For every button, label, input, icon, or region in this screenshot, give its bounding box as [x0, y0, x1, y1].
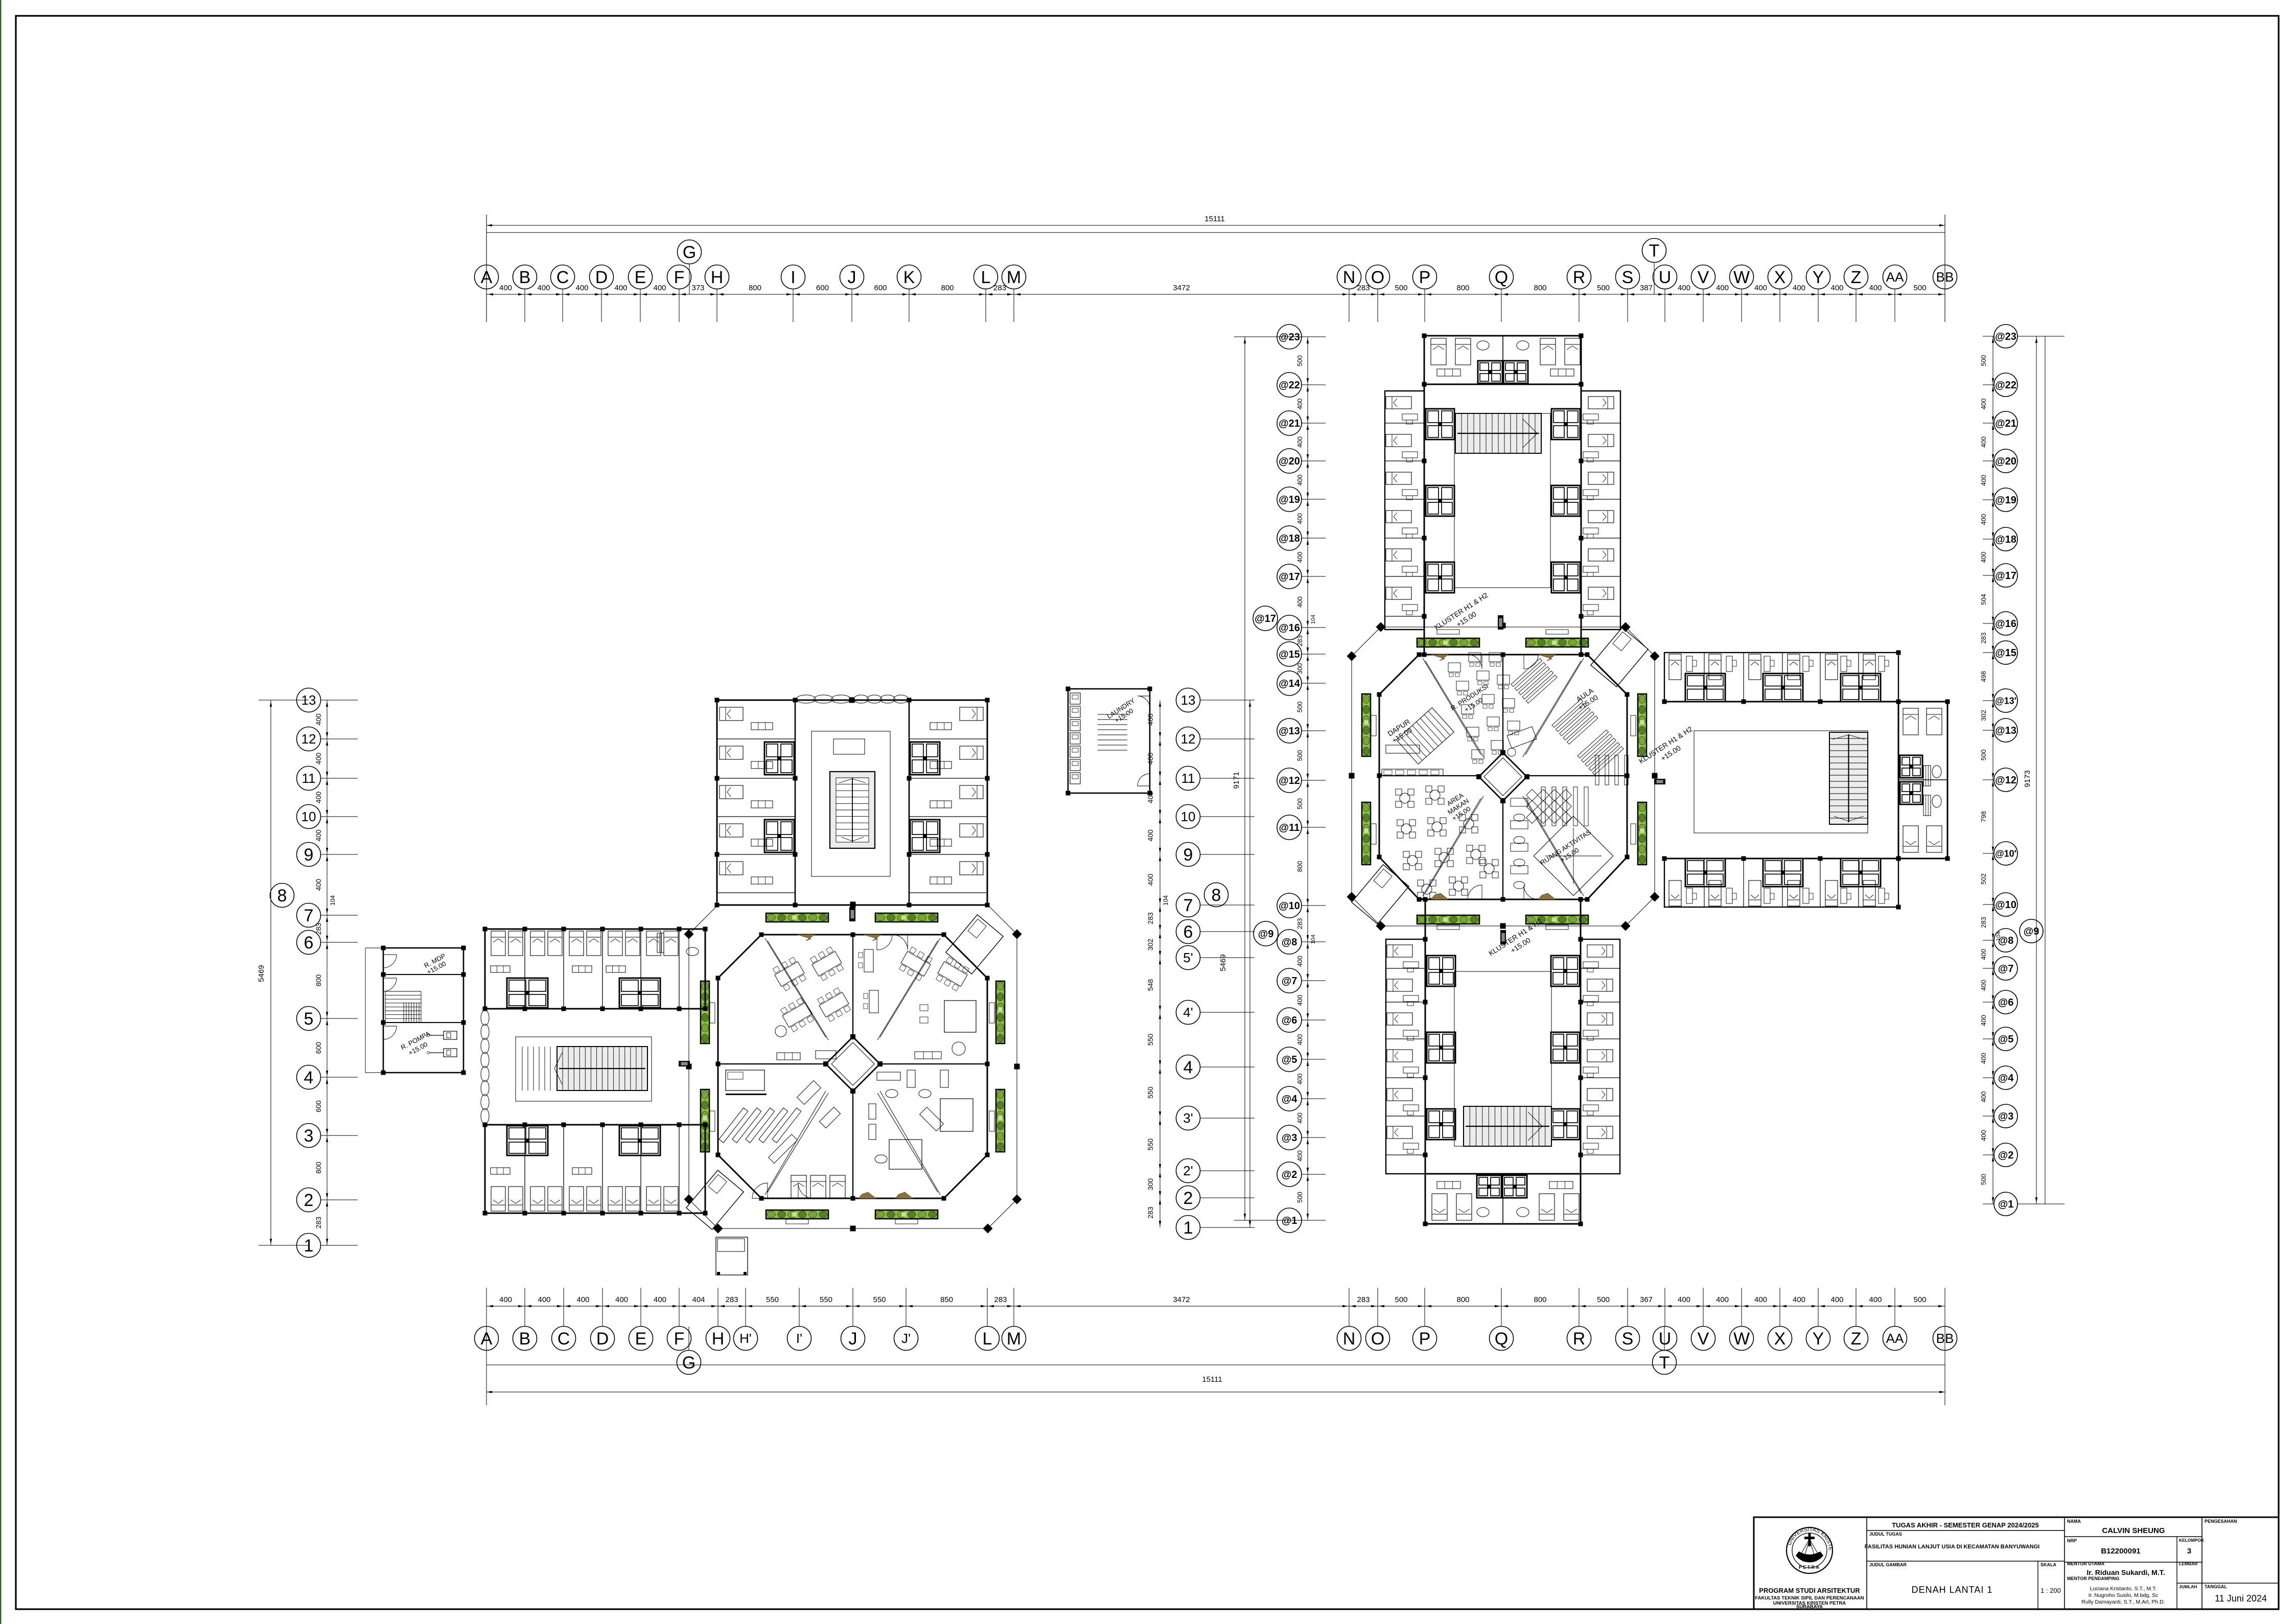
svg-text:@9: @9: [1258, 929, 1274, 940]
svg-text:NAMA: NAMA: [2067, 1519, 2081, 1524]
svg-text:500: 500: [1296, 702, 1304, 713]
svg-text:9173: 9173: [2023, 770, 2032, 787]
svg-text:400: 400: [1296, 596, 1304, 608]
svg-text:N: N: [1343, 1329, 1356, 1349]
svg-text:W: W: [1733, 1329, 1750, 1349]
svg-text:800: 800: [314, 1162, 322, 1174]
svg-text:@15: @15: [1279, 649, 1300, 660]
svg-text:400: 400: [1830, 1295, 1843, 1304]
svg-text:@20: @20: [1279, 456, 1300, 467]
svg-text:AA: AA: [1886, 1331, 1904, 1346]
svg-text:@16: @16: [1995, 618, 2016, 630]
svg-text:1 : 200: 1 : 200: [2040, 1587, 2061, 1594]
svg-text:@13': @13': [1995, 695, 2016, 706]
svg-text:400: 400: [314, 829, 322, 842]
svg-text:Q: Q: [1495, 1329, 1508, 1349]
svg-text:800: 800: [1456, 284, 1469, 292]
svg-text:500: 500: [1296, 1192, 1304, 1203]
svg-text:400: 400: [1296, 1112, 1304, 1124]
svg-text:504: 504: [1980, 594, 1987, 605]
svg-text:Rully Damayanti, S.T., M.Art,: Rully Damayanti, S.T., M.Art, Ph.D.: [2081, 1599, 2165, 1605]
svg-text:5': 5': [1183, 950, 1193, 965]
svg-text:@13: @13: [1279, 726, 1300, 737]
svg-text:12: 12: [1181, 731, 1196, 747]
svg-text:283: 283: [1296, 918, 1304, 930]
svg-text:500: 500: [1395, 284, 1407, 292]
svg-text:400: 400: [615, 1295, 628, 1304]
svg-text:M: M: [1007, 1329, 1021, 1349]
svg-text:B: B: [519, 1329, 531, 1349]
svg-text:F: F: [674, 268, 685, 287]
svg-text:PETRA: PETRA: [1799, 1565, 1820, 1570]
svg-text:Z: Z: [1851, 1329, 1862, 1349]
svg-text:400: 400: [499, 1295, 512, 1304]
svg-text:283: 283: [1357, 1295, 1370, 1304]
svg-text:5469: 5469: [1219, 954, 1227, 971]
svg-text:@19: @19: [1279, 494, 1300, 505]
svg-text:2: 2: [1184, 1189, 1193, 1208]
svg-text:400: 400: [1296, 995, 1304, 1006]
svg-text:9171: 9171: [1232, 772, 1241, 788]
svg-text:11: 11: [302, 771, 316, 786]
svg-text:MENTOR PENDAMPING: MENTOR PENDAMPING: [2067, 1576, 2119, 1581]
svg-text:@21: @21: [1279, 418, 1300, 429]
svg-text:400: 400: [1296, 436, 1304, 448]
svg-text:PENGESAHAN: PENGESAHAN: [2205, 1519, 2237, 1524]
svg-text:@3: @3: [1282, 1132, 1297, 1144]
svg-text:P: P: [1419, 268, 1431, 287]
svg-text:400: 400: [314, 879, 322, 891]
svg-text:387: 387: [1640, 284, 1653, 292]
svg-text:3: 3: [2187, 1547, 2191, 1556]
svg-text:11 Juni 2024: 11 Juni 2024: [2215, 1593, 2267, 1604]
svg-text:FASILITAS HUNIAN LANJUT USIA D: FASILITAS HUNIAN LANJUT USIA DI KECAMATA…: [1865, 1544, 2039, 1550]
svg-text:498: 498: [1980, 671, 1987, 682]
svg-text:D: D: [596, 1329, 609, 1349]
svg-text:283: 283: [725, 1295, 738, 1304]
svg-text:Q: Q: [1495, 268, 1508, 287]
svg-text:400: 400: [314, 713, 322, 726]
svg-text:283: 283: [1146, 912, 1154, 924]
svg-text:400: 400: [614, 284, 627, 292]
svg-text:@4: @4: [1998, 1073, 2014, 1084]
svg-text:104: 104: [1310, 615, 1316, 624]
svg-text:MENTOR UTAMA: MENTOR UTAMA: [2067, 1561, 2105, 1566]
svg-text:@13: @13: [1995, 725, 2016, 736]
svg-text:I: I: [791, 268, 795, 287]
svg-text:850: 850: [940, 1295, 953, 1304]
svg-text:Y: Y: [1813, 268, 1824, 287]
svg-text:@10': @10': [1995, 848, 2016, 859]
svg-text:373: 373: [691, 284, 704, 292]
svg-text:500: 500: [1597, 284, 1610, 292]
svg-text:400: 400: [1296, 956, 1304, 967]
svg-text:404: 404: [692, 1295, 705, 1304]
svg-text:JUDUL TUGAS: JUDUL TUGAS: [1869, 1532, 1902, 1537]
svg-text:800: 800: [1534, 284, 1546, 292]
svg-text:DENAH LANTAI 1: DENAH LANTAI 1: [1912, 1585, 1993, 1595]
svg-text:S: S: [1622, 1329, 1634, 1349]
svg-text:4: 4: [1184, 1058, 1193, 1077]
svg-text:500: 500: [1980, 750, 1987, 761]
svg-text:800: 800: [749, 284, 761, 292]
svg-text:LEMBAR: LEMBAR: [2179, 1561, 2197, 1566]
svg-text:1: 1: [304, 1236, 314, 1256]
svg-text:@12: @12: [1279, 775, 1300, 786]
svg-text:@22: @22: [1995, 380, 2016, 391]
svg-text:400: 400: [1146, 874, 1154, 886]
svg-text:4': 4': [1183, 1005, 1193, 1020]
svg-text:400: 400: [1980, 980, 1987, 991]
svg-text:600: 600: [816, 284, 829, 292]
svg-text:400: 400: [1980, 949, 1987, 960]
svg-text:C: C: [556, 268, 569, 287]
svg-text:283: 283: [993, 284, 1006, 292]
svg-text:@19: @19: [1995, 495, 2016, 506]
svg-text:7: 7: [304, 906, 314, 925]
svg-text:283: 283: [314, 1217, 322, 1229]
svg-text:550: 550: [766, 1295, 779, 1304]
svg-text:400: 400: [1146, 829, 1154, 842]
svg-text:800: 800: [941, 284, 954, 292]
svg-text:500: 500: [1913, 284, 1926, 292]
svg-text:400: 400: [1678, 284, 1690, 292]
svg-text:D: D: [595, 268, 608, 287]
svg-text:550: 550: [820, 1295, 832, 1304]
svg-text:10: 10: [302, 809, 316, 824]
svg-text:600: 600: [874, 284, 887, 292]
svg-text:3472: 3472: [1173, 284, 1190, 292]
svg-text:300: 300: [1146, 1178, 1154, 1191]
svg-text:@17: @17: [1255, 613, 1276, 624]
svg-text:B: B: [519, 268, 531, 287]
svg-text:G: G: [683, 243, 696, 262]
svg-text:@15: @15: [1995, 647, 2016, 659]
svg-text:400: 400: [1980, 1130, 1987, 1141]
svg-text:L: L: [983, 1329, 992, 1349]
svg-text:500: 500: [1980, 355, 1987, 366]
svg-text:@14: @14: [1279, 678, 1301, 689]
svg-text:R: R: [1573, 268, 1586, 287]
svg-text:X: X: [1774, 1329, 1786, 1349]
svg-text:11: 11: [1181, 771, 1195, 786]
svg-text:550: 550: [873, 1295, 886, 1304]
svg-text:H: H: [711, 268, 724, 287]
svg-text:KELOMPOK: KELOMPOK: [2179, 1538, 2205, 1543]
svg-text:400: 400: [1980, 1053, 1987, 1064]
svg-text:@11: @11: [1279, 822, 1300, 833]
svg-text:B12200091: B12200091: [2101, 1547, 2141, 1556]
svg-text:W: W: [1733, 268, 1750, 287]
svg-text:K: K: [903, 268, 915, 287]
svg-text:9: 9: [304, 845, 314, 865]
svg-text:I': I': [796, 1331, 802, 1346]
svg-text:500: 500: [1597, 1295, 1610, 1304]
svg-text:800: 800: [1456, 1295, 1469, 1304]
svg-text:@18: @18: [1995, 534, 2016, 545]
svg-text:400: 400: [1296, 1034, 1304, 1046]
svg-text:@6: @6: [1998, 997, 2014, 1008]
svg-text:400: 400: [654, 1295, 666, 1304]
svg-text:9: 9: [1184, 845, 1193, 865]
svg-text:400: 400: [1980, 436, 1987, 448]
svg-text:400: 400: [1296, 475, 1304, 486]
svg-text:O: O: [1371, 1329, 1384, 1349]
svg-text:400: 400: [576, 1295, 589, 1304]
svg-text:400: 400: [575, 284, 588, 292]
svg-text:15111: 15111: [1204, 215, 1225, 223]
svg-text:R: R: [1573, 1329, 1586, 1349]
svg-text:E: E: [635, 268, 646, 287]
svg-text:104: 104: [1996, 932, 2002, 941]
svg-text:@22: @22: [1279, 380, 1300, 391]
svg-text:400: 400: [499, 284, 512, 292]
svg-text:302: 302: [1980, 710, 1987, 721]
svg-text:CALVIN SHEUNG: CALVIN SHEUNG: [2102, 1526, 2165, 1535]
svg-text:400: 400: [1296, 1074, 1304, 1085]
svg-text:800: 800: [1534, 1295, 1546, 1304]
svg-text:@8: @8: [1282, 937, 1297, 948]
svg-text:H: H: [712, 1329, 725, 1349]
svg-text:283: 283: [314, 923, 322, 935]
svg-text:@12: @12: [1995, 775, 2016, 786]
svg-text:N: N: [1343, 268, 1356, 287]
svg-text:3: 3: [304, 1126, 314, 1146]
svg-text:13: 13: [1181, 692, 1196, 708]
svg-text:@20: @20: [1995, 456, 2016, 467]
svg-text:7: 7: [1184, 896, 1193, 915]
svg-text:2': 2': [1183, 1163, 1193, 1178]
svg-text:400: 400: [1716, 1295, 1729, 1304]
svg-text:400: 400: [1793, 1295, 1805, 1304]
svg-text:400: 400: [314, 792, 322, 804]
svg-text:400: 400: [1716, 284, 1729, 292]
svg-text:400: 400: [1869, 284, 1882, 292]
svg-text:5: 5: [304, 1009, 314, 1029]
svg-text:400: 400: [1296, 513, 1304, 524]
svg-text:400: 400: [1980, 399, 1987, 410]
svg-text:C: C: [558, 1329, 570, 1349]
svg-text:JUDUL GAMBAR: JUDUL GAMBAR: [1869, 1562, 1907, 1567]
svg-text:2: 2: [304, 1191, 314, 1210]
svg-text:400: 400: [1869, 1295, 1882, 1304]
svg-text:@18: @18: [1279, 533, 1300, 544]
svg-text:H': H': [739, 1331, 752, 1346]
svg-text:PROGRAM STUDI ARSITEKTUR: PROGRAM STUDI ARSITEKTUR: [1759, 1587, 1860, 1594]
svg-text:283: 283: [994, 1295, 1007, 1304]
svg-text:500: 500: [1913, 1295, 1926, 1304]
svg-text:502: 502: [1980, 873, 1987, 885]
svg-text:104: 104: [329, 895, 336, 906]
svg-text:800: 800: [1296, 861, 1304, 872]
svg-text:M: M: [1007, 268, 1021, 287]
svg-text:@6: @6: [1282, 1015, 1297, 1026]
svg-text:JUMLAH: JUMLAH: [2179, 1584, 2197, 1589]
svg-text:Z: Z: [1851, 268, 1862, 287]
svg-text:10: 10: [1181, 809, 1196, 824]
svg-text:A: A: [481, 268, 493, 287]
svg-text:548: 548: [1146, 979, 1154, 991]
svg-text:550: 550: [1146, 1086, 1154, 1099]
svg-text:1: 1: [1184, 1218, 1193, 1238]
svg-text:6: 6: [304, 933, 314, 953]
svg-text:BB: BB: [1936, 269, 1954, 285]
svg-text:@10: @10: [1279, 900, 1300, 912]
svg-text:NRP: NRP: [2067, 1538, 2077, 1543]
svg-text:400: 400: [314, 753, 322, 765]
svg-text:400: 400: [653, 284, 666, 292]
svg-text:U: U: [1659, 268, 1672, 287]
svg-text:300: 300: [1296, 663, 1304, 675]
svg-text:@7: @7: [1282, 976, 1297, 987]
svg-text:@10: @10: [1995, 899, 2016, 911]
svg-text:400: 400: [1296, 552, 1304, 563]
svg-text:@7: @7: [1998, 963, 2014, 975]
svg-text:TUGAS AKHIR - SEMESTER GENAP 2: TUGAS AKHIR - SEMESTER GENAP 2024/2025: [1892, 1521, 2039, 1529]
svg-text:E: E: [635, 1329, 647, 1349]
svg-text:@4: @4: [1282, 1094, 1298, 1105]
svg-text:P: P: [1419, 1329, 1431, 1349]
svg-text:283: 283: [1980, 633, 1987, 644]
svg-text:400: 400: [538, 1295, 550, 1304]
svg-text:S: S: [1622, 268, 1634, 287]
svg-text:@9: @9: [2024, 926, 2039, 937]
svg-text:@1: @1: [1282, 1215, 1297, 1226]
svg-text:SURABAYA: SURABAYA: [1796, 1604, 1823, 1610]
svg-text:400: 400: [1980, 514, 1987, 525]
svg-text:AA: AA: [1886, 269, 1904, 285]
svg-text:400: 400: [1980, 1015, 1987, 1026]
svg-text:@2: @2: [1282, 1169, 1297, 1180]
svg-text:@17: @17: [1995, 570, 2016, 582]
svg-text:V: V: [1698, 1329, 1709, 1349]
svg-text:T: T: [1649, 241, 1660, 261]
svg-text:400: 400: [1678, 1295, 1690, 1304]
svg-text:L: L: [981, 268, 991, 287]
svg-text:800: 800: [314, 975, 322, 987]
svg-text:@5: @5: [1282, 1054, 1297, 1065]
svg-text:400: 400: [1793, 284, 1805, 292]
svg-text:400: 400: [1754, 1295, 1767, 1304]
svg-text:@21: @21: [1995, 418, 2016, 429]
svg-text:283: 283: [1980, 917, 1987, 928]
svg-text:@2: @2: [1998, 1150, 2014, 1161]
svg-text:104: 104: [1310, 935, 1316, 944]
svg-text:500: 500: [1296, 750, 1304, 761]
svg-text:8: 8: [277, 886, 287, 906]
svg-text:500: 500: [1980, 1174, 1987, 1185]
svg-text:500: 500: [1395, 1295, 1407, 1304]
svg-text:U: U: [1659, 1329, 1672, 1349]
svg-text:Y: Y: [1813, 1329, 1824, 1349]
svg-text:@17: @17: [1279, 571, 1300, 583]
svg-text:798: 798: [1980, 811, 1987, 822]
svg-text:SKALA: SKALA: [2040, 1562, 2056, 1567]
svg-text:@5: @5: [1998, 1034, 2014, 1045]
svg-text:400: 400: [1296, 399, 1304, 410]
svg-text:283: 283: [1357, 284, 1370, 292]
svg-text:5469: 5469: [257, 965, 266, 982]
svg-text:400: 400: [537, 284, 550, 292]
svg-text:O: O: [1371, 268, 1384, 287]
svg-text:12: 12: [302, 731, 316, 747]
svg-text:J: J: [848, 268, 856, 287]
svg-text:367: 367: [1640, 1295, 1653, 1304]
svg-text:104: 104: [1162, 895, 1169, 906]
svg-text:J': J': [901, 1331, 911, 1346]
svg-text:TANGGAL: TANGGAL: [2205, 1584, 2227, 1589]
svg-text:@23: @23: [1279, 332, 1300, 343]
svg-text:T: T: [1659, 1353, 1670, 1373]
svg-text:8: 8: [1212, 886, 1221, 905]
svg-text:@1: @1: [1998, 1199, 2014, 1210]
svg-text:3472: 3472: [1173, 1295, 1190, 1304]
svg-text:4: 4: [304, 1068, 314, 1087]
svg-text:550: 550: [1146, 1034, 1154, 1046]
svg-text:3': 3': [1183, 1110, 1193, 1126]
svg-text:400: 400: [1754, 284, 1767, 292]
svg-text:@16: @16: [1279, 622, 1300, 634]
svg-text:@23: @23: [1995, 331, 2016, 342]
svg-text:600: 600: [314, 1042, 322, 1054]
svg-text:Luciana Kristanto, S.T., M.T.: Luciana Kristanto, S.T., M.T.: [2090, 1586, 2157, 1592]
svg-text:400: 400: [1980, 475, 1987, 486]
svg-text:600: 600: [314, 1100, 322, 1112]
svg-text:500: 500: [1296, 355, 1304, 366]
svg-text:F: F: [674, 1329, 685, 1349]
svg-text:Ir. Riduan Sukardi, M.T.: Ir. Riduan Sukardi, M.T.: [2086, 1568, 2165, 1576]
svg-text:500: 500: [1296, 798, 1304, 809]
svg-text:G: G: [682, 1353, 695, 1373]
svg-text:400: 400: [1296, 1150, 1304, 1162]
svg-text:400: 400: [1980, 1092, 1987, 1103]
svg-text:@3: @3: [1998, 1111, 2014, 1122]
svg-text:X: X: [1774, 268, 1786, 287]
svg-text:400: 400: [1980, 552, 1987, 563]
svg-text:283: 283: [1296, 635, 1304, 646]
svg-text:V: V: [1698, 268, 1709, 287]
svg-text:15111: 15111: [1202, 1375, 1222, 1384]
svg-text:J: J: [849, 1329, 857, 1349]
svg-text:Ir. Nugroho Susilo, M.bdg, Sc: Ir. Nugroho Susilo, M.bdg, Sc: [2089, 1592, 2159, 1598]
svg-text:400: 400: [1830, 284, 1843, 292]
svg-text:302: 302: [1146, 939, 1154, 951]
svg-text:550: 550: [1146, 1139, 1154, 1151]
svg-text:6: 6: [1184, 922, 1193, 942]
svg-text:283: 283: [1146, 1207, 1154, 1219]
